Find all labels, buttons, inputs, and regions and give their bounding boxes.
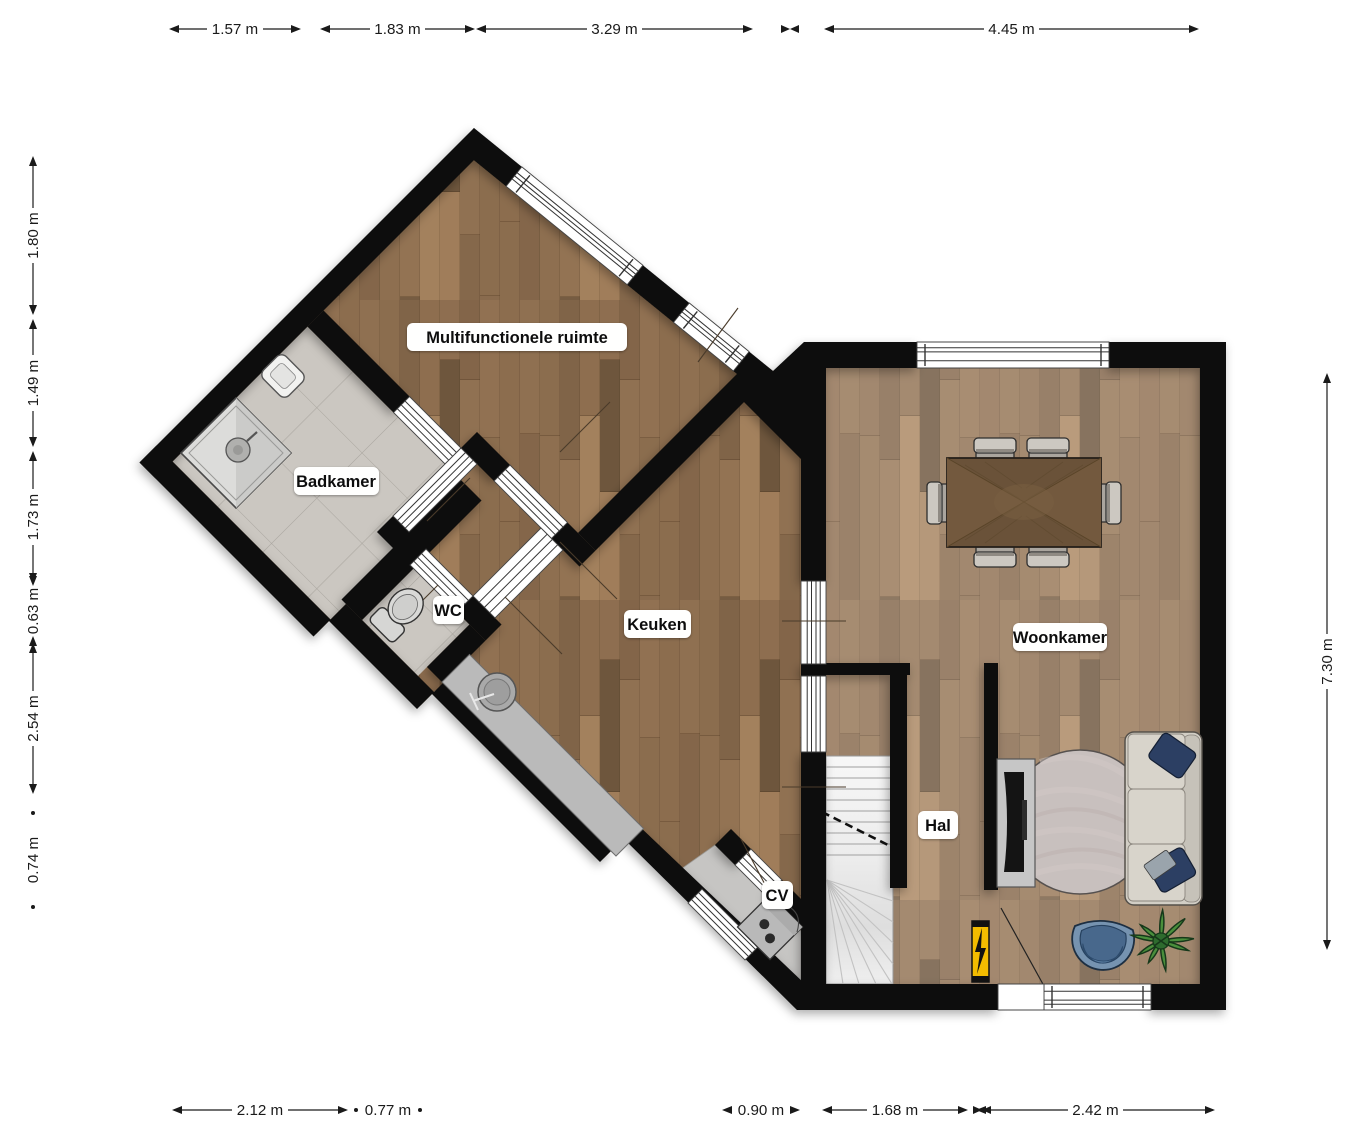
svg-text:1.57 m: 1.57 m [212, 21, 258, 38]
svg-text:1.83 m: 1.83 m [374, 21, 420, 38]
svg-text:2.12 m: 2.12 m [237, 1102, 283, 1119]
svg-text:1.80 m: 1.80 m [25, 212, 42, 258]
svg-text:3.29 m: 3.29 m [591, 21, 637, 38]
svg-text:1.49 m: 1.49 m [25, 360, 42, 406]
svg-text:0.90 m: 0.90 m [738, 1102, 784, 1119]
svg-text:CV: CV [766, 887, 789, 905]
svg-text:1.68 m: 1.68 m [872, 1102, 918, 1119]
svg-text:WC: WC [434, 602, 462, 620]
svg-text:7.30 m: 7.30 m [1319, 638, 1336, 684]
svg-text:Woonkamer: Woonkamer [1013, 629, 1108, 647]
svg-text:Multifunctionele ruimte: Multifunctionele ruimte [426, 329, 608, 347]
svg-text:0.63 m: 0.63 m [25, 588, 42, 634]
svg-text:4.45 m: 4.45 m [988, 21, 1034, 38]
svg-text:2.42 m: 2.42 m [1072, 1102, 1118, 1119]
svg-text:1.73 m: 1.73 m [25, 494, 42, 540]
svg-text:0.77 m: 0.77 m [365, 1102, 411, 1119]
svg-text:Keuken: Keuken [627, 616, 687, 634]
svg-text:0.74 m: 0.74 m [25, 837, 42, 883]
svg-text:Badkamer: Badkamer [296, 473, 376, 491]
svg-text:Hal: Hal [925, 817, 951, 835]
svg-text:2.54 m: 2.54 m [25, 695, 42, 741]
